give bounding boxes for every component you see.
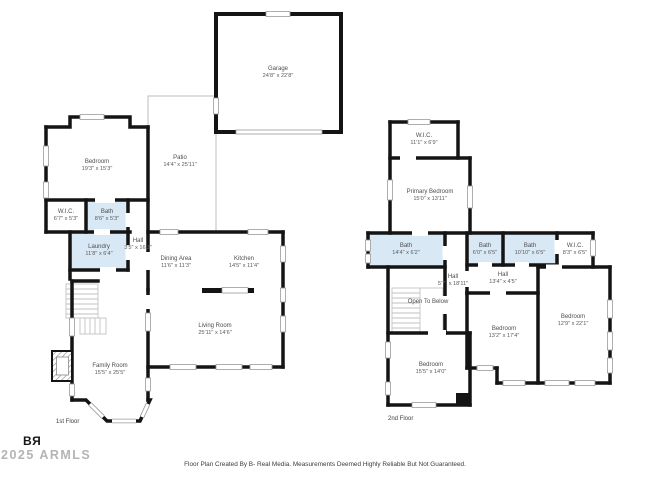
room-label-bath-left: Bath14'4" x 6'2" — [392, 242, 420, 258]
room-label-wic-top: W.I.C.11'1" x 6'9" — [410, 132, 437, 148]
garage-door — [236, 130, 322, 134]
room-label-hall-horiz: Hall13'4" x 4'5" — [489, 271, 517, 287]
stairs-second-floor — [392, 288, 443, 333]
fireplace-icon — [52, 351, 72, 381]
room-label-bedroom-mid: Bedroom13'2" x 17'4" — [489, 325, 520, 341]
room-label-hall-f1: Hall3'5" x 16'3" — [124, 237, 152, 253]
room-label-wic-f1: W.I.C.6'7" x 5'3" — [54, 208, 78, 224]
room-label-patio: Patio14'4" x 25'11" — [163, 154, 196, 170]
room-label-bedroom-right: Bedroom12'9" x 22'1" — [558, 313, 589, 329]
floor2-label: 2nd Floor — [388, 416, 413, 422]
room-label-kitchen: Kitchen14'5" x 11'4" — [229, 255, 259, 271]
footer-disclaimer: Floor Plan Created By B- Real Media. Mea… — [0, 461, 650, 468]
room-label-dining: Dining Area11'6" x 11'3" — [160, 255, 191, 271]
chimney-block — [456, 393, 470, 405]
room-label-wic-right: W.I.C.8'3" x 6'5" — [563, 242, 587, 258]
floorplan-page: Garage24'8" x 22'8" Patio14'4" x 25'11" … — [0, 0, 650, 488]
room-label-hall-vert: Hall5'7" x 18'11" — [438, 273, 468, 289]
floor1-label: 1st Floor — [56, 419, 79, 425]
room-label-laundry: Laundry11'8" x 6'4" — [85, 243, 112, 259]
second-floor-plan — [366, 120, 613, 408]
room-label-open-below: Open To Below — [408, 298, 449, 306]
armls-watermark: 2025 ARMLS — [1, 448, 91, 462]
brand-watermark: BЯ 2025 ARMLS — [0, 434, 91, 462]
first-floor-plan — [44, 12, 342, 422]
room-label-living: Living Room25'11" x 14'6" — [198, 322, 231, 338]
room-label-family: Family Room15'5" x 25'5" — [92, 362, 127, 378]
room-label-bath-mid: Bath6'0" x 6'5" — [473, 242, 497, 258]
room-label-bedroom-f1: Bedroom19'3" x 15'3" — [82, 158, 113, 174]
room-label-garage: Garage24'8" x 22'8" — [263, 65, 294, 81]
room-label-bath-f1: Bath8'6" x 5'3" — [95, 208, 119, 224]
room-label-bath-right: Bath10'10" x 6'5" — [515, 242, 546, 258]
kitchen-peninsula — [202, 288, 222, 293]
br-logo: BЯ — [23, 434, 91, 448]
room-label-bedroom-left: Bedroom15'5" x 14'0" — [416, 361, 447, 377]
room-label-primary: Primary Bedroom15'0" x 13'11" — [407, 188, 454, 204]
